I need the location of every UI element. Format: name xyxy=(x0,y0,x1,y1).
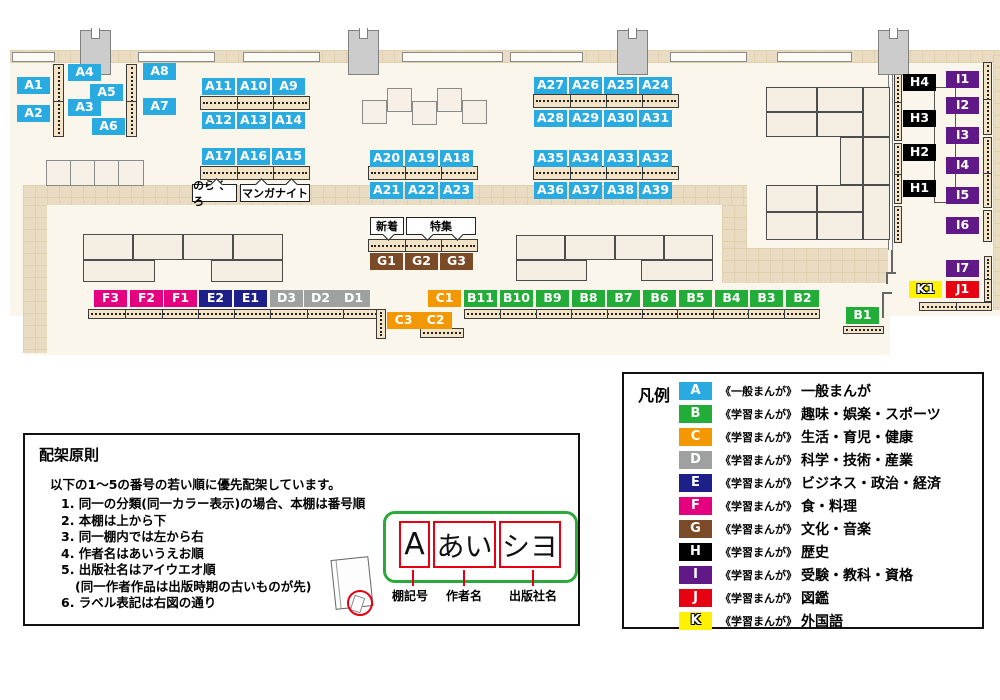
legend-title: 凡例 xyxy=(638,382,670,406)
principle-item-2: 2. 本棚は上から下 xyxy=(61,513,365,530)
legend-row-H: H《学習まんが》歴史 xyxy=(679,540,941,563)
principle-item-6: (同一作者作品は出版時期の古いものが先) xyxy=(61,579,365,596)
legend-rows: A《一般まんが》一般まんがB《学習まんが》趣味・娯楽・スポーツC《学習まんが》生… xyxy=(679,379,941,632)
legend-row-B: B《学習まんが》趣味・娯楽・スポーツ xyxy=(679,402,941,425)
legend-swatch-D: D xyxy=(679,451,712,469)
legend-category: 受験・教科・資格 xyxy=(801,565,913,585)
callout-マンガナイト: マンガナイト xyxy=(240,184,310,202)
library-floor-map: A1A2A4A5A3A6A8A7A11A10A9A12A13A14A17A16A… xyxy=(0,0,1000,700)
legend-swatch-G: G xyxy=(679,520,712,538)
principles-intro: 以下の1〜5の番号の若い順に優先配架しています。 xyxy=(50,474,341,493)
callout-notch xyxy=(452,228,465,241)
callout-特集: 特集 xyxy=(406,217,476,235)
caption-shelf-code: 棚記号 xyxy=(392,587,428,604)
legend-swatch-C: C xyxy=(679,428,712,446)
callout-notch xyxy=(255,178,268,191)
callout-notch xyxy=(382,228,395,241)
legend-row-A: A《一般まんが》一般まんが xyxy=(679,379,941,402)
legend-prefix: 《学習まんが》 xyxy=(720,452,797,468)
legend-prefix: 《学習まんが》 xyxy=(720,406,797,422)
legend-swatch-F: F xyxy=(679,497,712,515)
highlight-circle-icon xyxy=(347,590,373,616)
legend-row-C: C《学習まんが》生活・育児・健康 xyxy=(679,425,941,448)
legend-category: 食・料理 xyxy=(801,496,857,516)
legend-row-F: F《学習まんが》食・料理 xyxy=(679,494,941,517)
legend-swatch-I: I xyxy=(679,566,712,584)
caption-author: 作者名 xyxy=(446,587,482,604)
legend-row-G: G《学習まんが》文化・音楽 xyxy=(679,517,941,540)
legend-prefix: 《学習まんが》 xyxy=(720,475,797,491)
principles-title: 配架原則 xyxy=(39,444,99,465)
legend-category: 文化・音楽 xyxy=(801,519,871,539)
legend-prefix: 《学習まんが》 xyxy=(720,498,797,514)
label-cell-publisher: シヨ xyxy=(499,521,561,568)
legend-swatch-E: E xyxy=(679,474,712,492)
principles-list: 1. 同一の分類(同一カラー表示)の場合、本棚は番号順2. 本棚は上から下3. … xyxy=(61,496,365,612)
principle-item-1: 1. 同一の分類(同一カラー表示)の場合、本棚は番号順 xyxy=(61,496,365,513)
callout-line xyxy=(532,570,534,586)
legend-category: ビジネス・政治・経済 xyxy=(801,473,941,493)
legend-swatch-K: K xyxy=(679,612,712,630)
legend-prefix: 《学習まんが》 xyxy=(720,521,797,537)
legend-prefix: 《学習まんが》 xyxy=(720,613,797,629)
legend-prefix: 《学習まんが》 xyxy=(720,429,797,445)
label-cell-shelf-code: A xyxy=(399,521,430,568)
legend-category: 図鑑 xyxy=(801,588,829,608)
legend-prefix: 《学習まんが》 xyxy=(720,590,797,606)
legend-swatch-B: B xyxy=(679,405,712,423)
legend-category: 趣味・娯楽・スポーツ xyxy=(801,404,941,424)
legend-category: 生活・育児・健康 xyxy=(801,427,913,447)
legend-row-K: K《学習まんが》外国語 xyxy=(679,609,941,632)
legend-row-E: E《学習まんが》ビジネス・政治・経済 xyxy=(679,471,941,494)
callout-line xyxy=(412,570,414,586)
legend-swatch-H: H xyxy=(679,543,712,561)
callout-line xyxy=(463,570,465,586)
callout-のらくろ: のらくろ xyxy=(192,184,237,202)
legend-row-D: D《学習まんが》科学・技術・産業 xyxy=(679,448,941,471)
principle-item-3: 3. 同一棚内では左から右 xyxy=(61,529,365,546)
legend-box: 凡例 A《一般まんが》一般まんがB《学習まんが》趣味・娯楽・スポーツC《学習まん… xyxy=(622,372,984,629)
callout-notch xyxy=(421,228,434,241)
callout-notch xyxy=(210,178,223,191)
legend-prefix: 《一般まんが》 xyxy=(720,383,797,399)
principle-item-7: 6. ラベル表記は右図の通り xyxy=(61,595,365,612)
legend-prefix: 《学習まんが》 xyxy=(720,567,797,583)
principle-item-4: 4. 作者名はあいうえお順 xyxy=(61,546,365,563)
legend-row-J: J《学習まんが》図鑑 xyxy=(679,586,941,609)
callout-新着: 新着 xyxy=(370,217,404,235)
legend-category: 歴史 xyxy=(801,542,829,562)
callout-notch xyxy=(286,178,299,191)
legend-swatch-A: A xyxy=(679,382,712,400)
legend-swatch-J: J xyxy=(679,589,712,607)
label-cell-author: あい xyxy=(433,521,496,568)
legend-category: 一般まんが xyxy=(801,381,871,401)
legend-prefix: 《学習まんが》 xyxy=(720,544,797,560)
legend-category: 科学・技術・産業 xyxy=(801,450,913,470)
principle-item-5: 5. 出版社名はアイウエオ順 xyxy=(61,562,365,579)
caption-publisher: 出版社名 xyxy=(509,587,557,604)
legend-category: 外国語 xyxy=(801,611,843,631)
legend-row-I: I《学習まんが》受験・教科・資格 xyxy=(679,563,941,586)
